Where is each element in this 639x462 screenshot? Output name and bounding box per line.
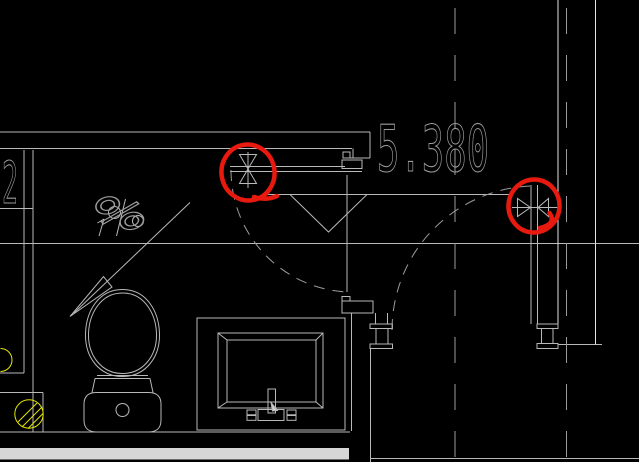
- wall-fill-layer: [0, 448, 349, 460]
- axis-number-label: 2: [2, 149, 18, 217]
- slope-percent-label: %: [90, 177, 150, 249]
- cad-canvas: 5.380 2 %: [0, 0, 639, 462]
- floor-plan-drawing: 5.380 2 %: [0, 0, 639, 462]
- elevation-label: 5.380: [377, 113, 489, 187]
